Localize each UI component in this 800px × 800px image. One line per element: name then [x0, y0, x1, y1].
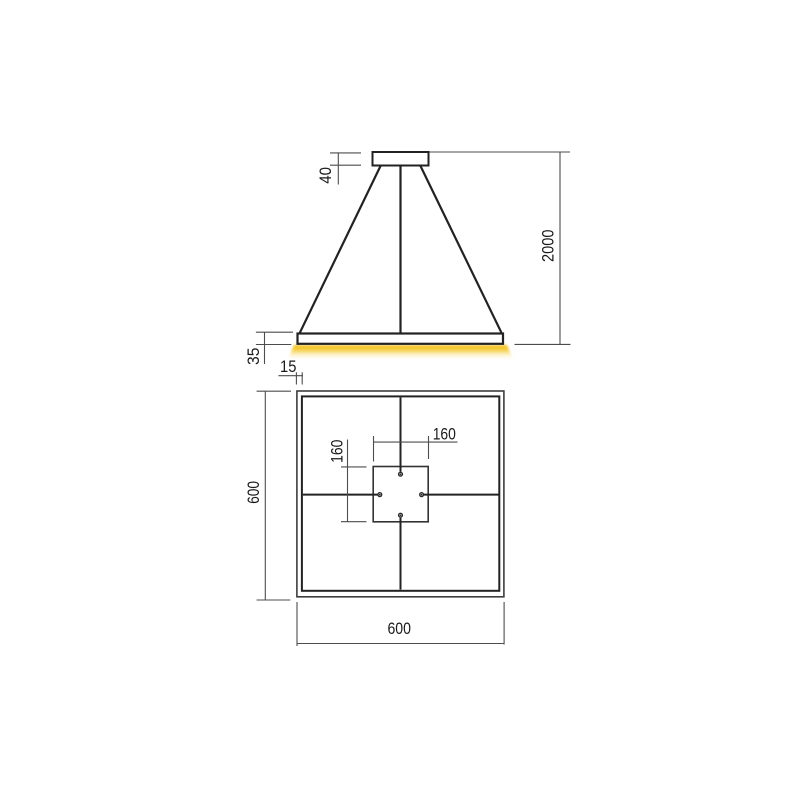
svg-text:160: 160	[433, 425, 456, 443]
svg-text:15: 15	[280, 358, 296, 376]
svg-text:2000: 2000	[539, 230, 557, 262]
svg-text:600: 600	[387, 620, 411, 638]
svg-text:35: 35	[245, 348, 263, 365]
svg-text:160: 160	[329, 440, 347, 463]
svg-text:600: 600	[245, 481, 263, 504]
svg-text:40: 40	[317, 167, 335, 184]
